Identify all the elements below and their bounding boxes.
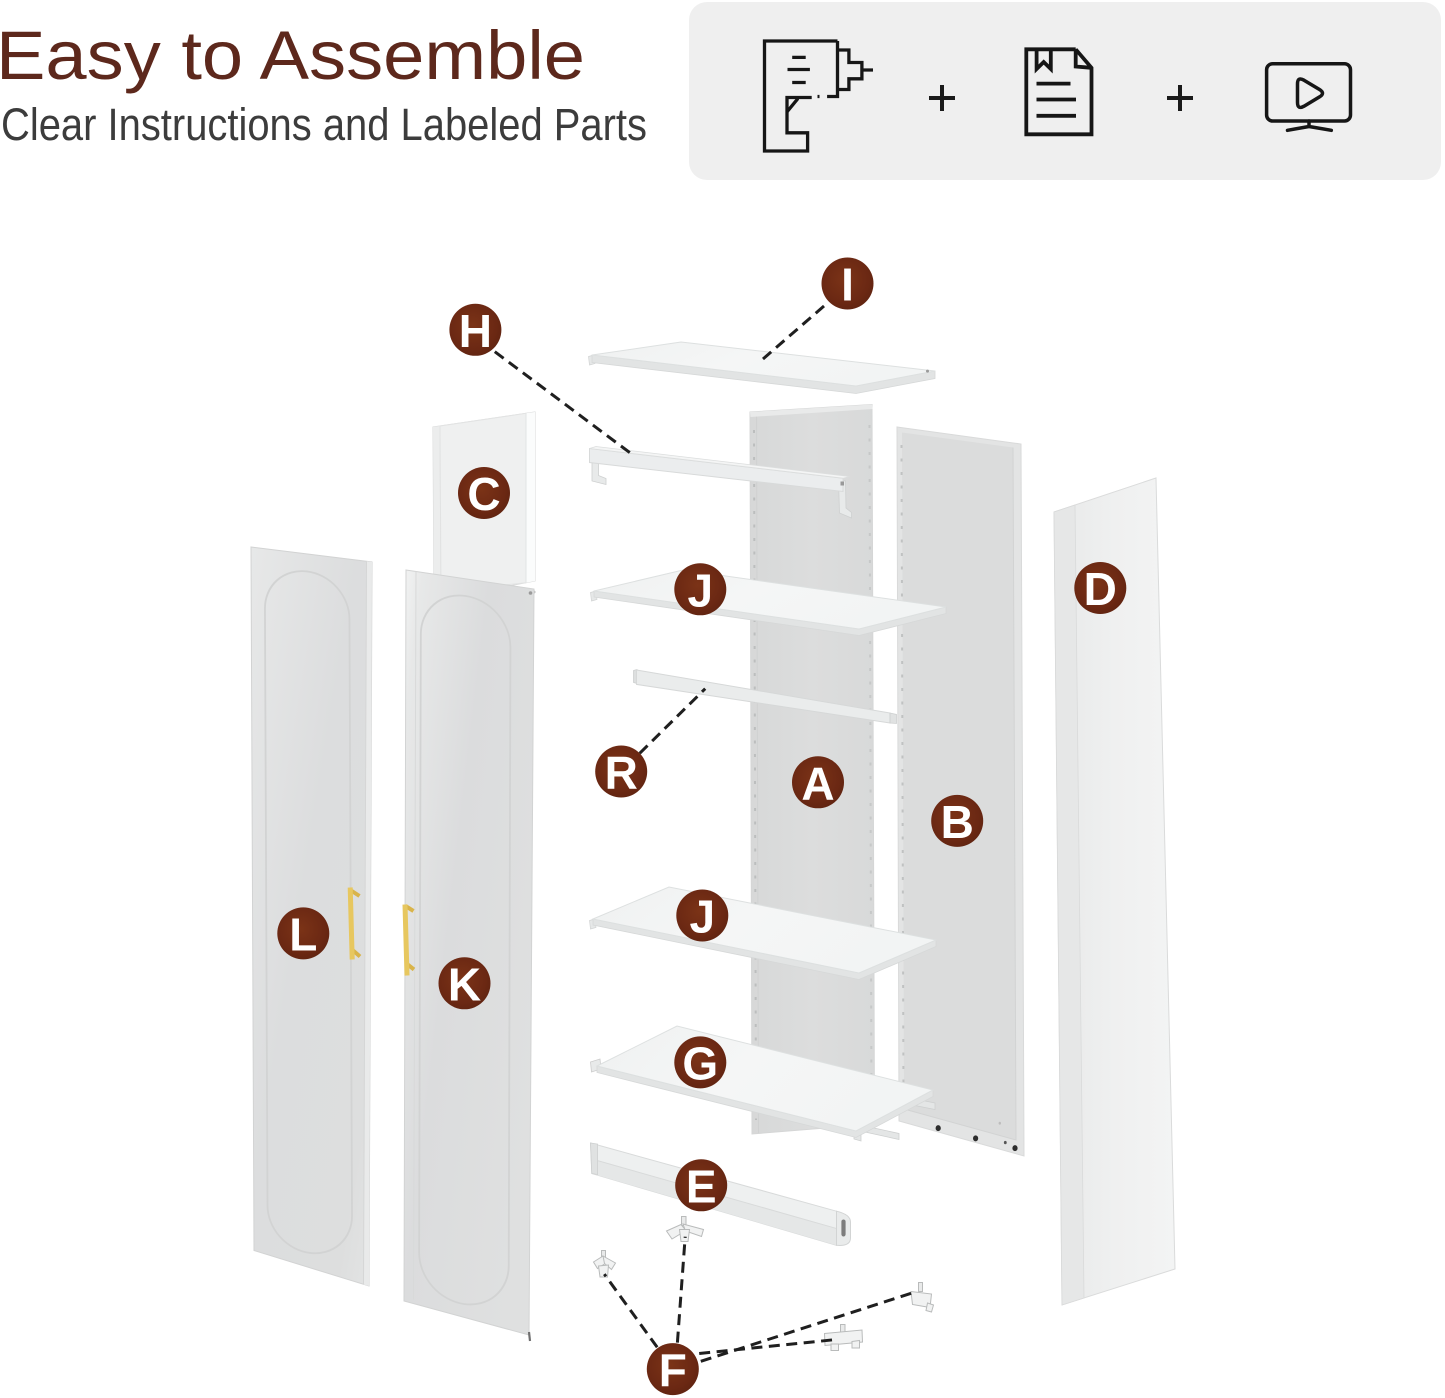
svg-text:J: J <box>690 891 716 943</box>
svg-text:H: H <box>459 305 492 357</box>
svg-text:Easy to Assemble: Easy to Assemble <box>0 17 585 94</box>
svg-text:E: E <box>686 1160 717 1212</box>
svg-text:Clear Instructions and Labeled: Clear Instructions and Labeled Parts <box>1 99 647 150</box>
svg-text:I: I <box>841 259 854 311</box>
svg-text:B: B <box>941 796 974 848</box>
svg-text:K: K <box>448 958 481 1010</box>
svg-text:A: A <box>801 757 834 809</box>
svg-text:L: L <box>289 908 317 960</box>
svg-text:G: G <box>682 1037 718 1089</box>
svg-text:F: F <box>659 1344 687 1396</box>
svg-text:J: J <box>688 564 714 616</box>
svg-text:D: D <box>1084 563 1117 615</box>
svg-text:C: C <box>467 468 500 520</box>
svg-text:R: R <box>605 747 638 799</box>
